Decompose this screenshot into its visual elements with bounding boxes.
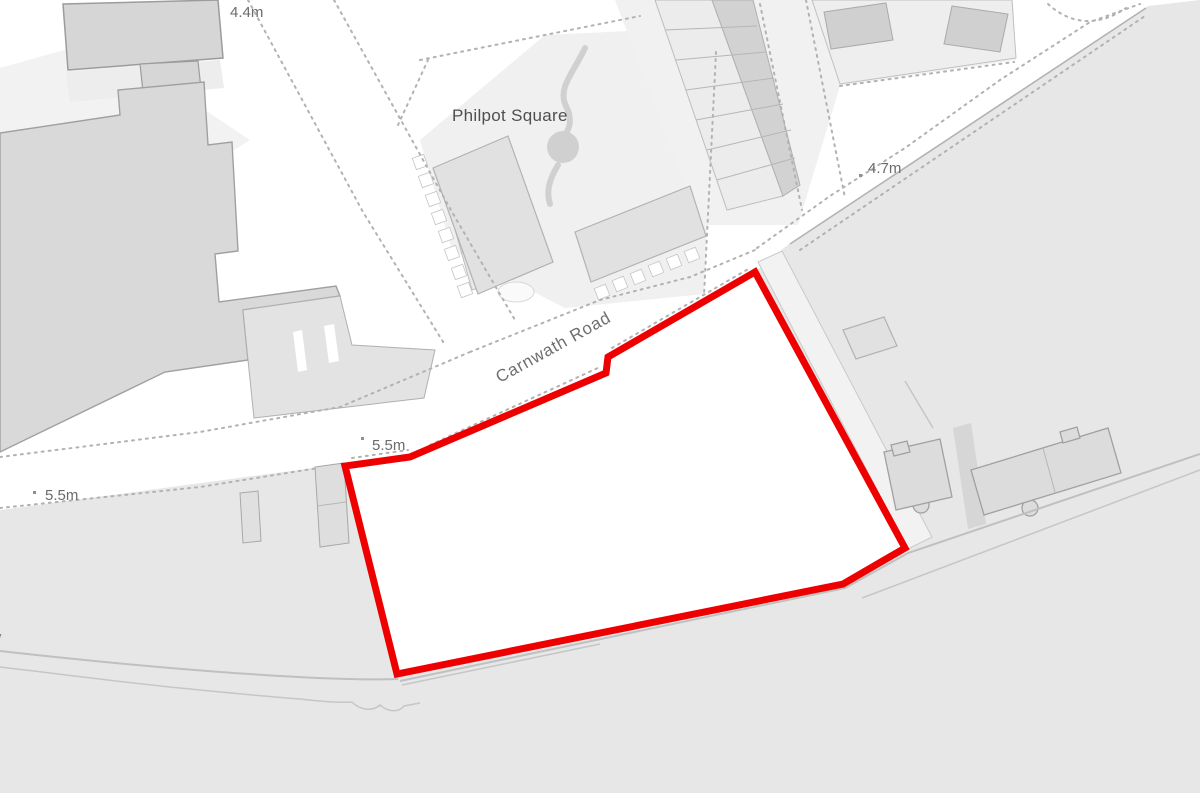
spot-height-marker	[361, 437, 364, 440]
spot-height-4-4: 4.4m	[230, 4, 263, 21]
place-label: Philpot Square	[452, 106, 568, 125]
spot-height-4-7: 4.7m	[868, 160, 901, 177]
map-view[interactable]: Philpot Square Carnwath Road 4.4m 4.7m 5…	[0, 0, 1200, 793]
spot-height-5-5-mid: 5.5m	[372, 437, 405, 454]
spot-height-marker	[33, 491, 36, 494]
map-canvas: Philpot Square Carnwath Road 4.4m 4.7m 5…	[0, 0, 1200, 793]
spot-height-5-5-left: 5.5m	[45, 487, 78, 504]
spot-height-marker	[859, 174, 862, 177]
